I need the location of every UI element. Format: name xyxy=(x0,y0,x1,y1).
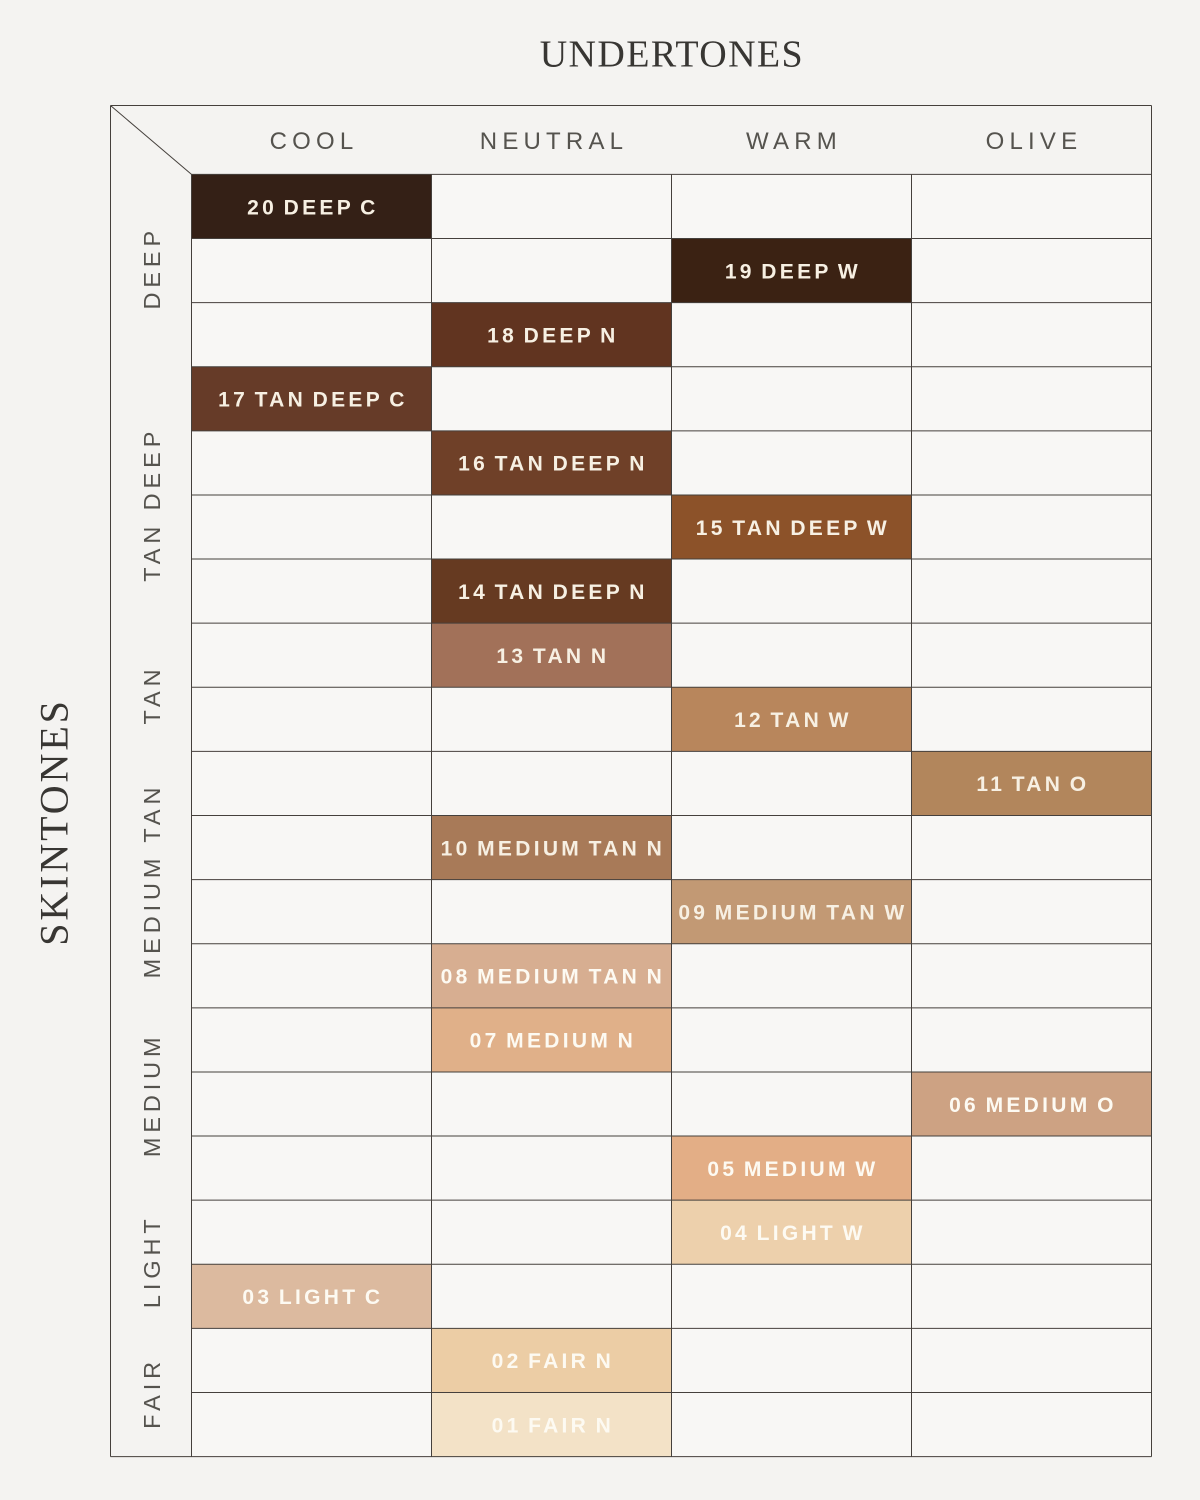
svg-text:UNDERTONES: UNDERTONES xyxy=(540,34,804,76)
svg-text:10 MEDIUM TAN N: 10 MEDIUM TAN N xyxy=(441,837,666,860)
svg-text:07 MEDIUM N: 07 MEDIUM N xyxy=(470,1030,636,1053)
svg-text:09 MEDIUM TAN W: 09 MEDIUM TAN W xyxy=(678,901,907,924)
svg-text:08 MEDIUM TAN N: 08 MEDIUM TAN N xyxy=(441,966,666,989)
svg-text:20 DEEP C: 20 DEEP C xyxy=(247,196,379,219)
svg-text:03 LIGHT C: 03 LIGHT C xyxy=(242,1286,383,1309)
svg-text:SKINTONES: SKINTONES xyxy=(32,698,77,946)
svg-text:06 MEDIUM O: 06 MEDIUM O xyxy=(949,1094,1117,1117)
svg-text:FAIR: FAIR xyxy=(139,1357,165,1429)
svg-text:LIGHT: LIGHT xyxy=(139,1214,165,1308)
svg-text:04 LIGHT W: 04 LIGHT W xyxy=(720,1222,866,1245)
svg-text:MEDIUM TAN: MEDIUM TAN xyxy=(139,783,165,979)
svg-text:16 TAN DEEP N: 16 TAN DEEP N xyxy=(458,453,648,476)
svg-text:14 TAN DEEP N: 14 TAN DEEP N xyxy=(458,581,648,604)
svg-text:TAN DEEP: TAN DEEP xyxy=(139,427,165,582)
svg-text:11 TAN O: 11 TAN O xyxy=(976,773,1089,796)
svg-text:05 MEDIUM W: 05 MEDIUM W xyxy=(707,1158,878,1181)
svg-text:13 TAN N: 13 TAN N xyxy=(496,645,609,668)
svg-text:18 DEEP N: 18 DEEP N xyxy=(487,324,619,347)
svg-text:OLIVE: OLIVE xyxy=(986,128,1083,155)
svg-text:12 TAN W: 12 TAN W xyxy=(734,709,852,732)
svg-text:COOL: COOL xyxy=(270,128,359,155)
svg-text:19 DEEP W: 19 DEEP W xyxy=(725,260,861,283)
svg-text:17 TAN DEEP C: 17 TAN DEEP C xyxy=(218,389,408,412)
svg-text:01 FAIR N: 01 FAIR N xyxy=(492,1414,615,1437)
svg-text:TAN: TAN xyxy=(139,665,165,725)
svg-text:NEUTRAL: NEUTRAL xyxy=(480,128,628,155)
svg-text:DEEP: DEEP xyxy=(139,226,165,310)
svg-text:WARM: WARM xyxy=(746,128,842,155)
svg-text:MEDIUM: MEDIUM xyxy=(139,1032,165,1157)
svg-text:02 FAIR N: 02 FAIR N xyxy=(492,1350,615,1373)
svg-text:15 TAN DEEP W: 15 TAN DEEP W xyxy=(696,517,890,540)
